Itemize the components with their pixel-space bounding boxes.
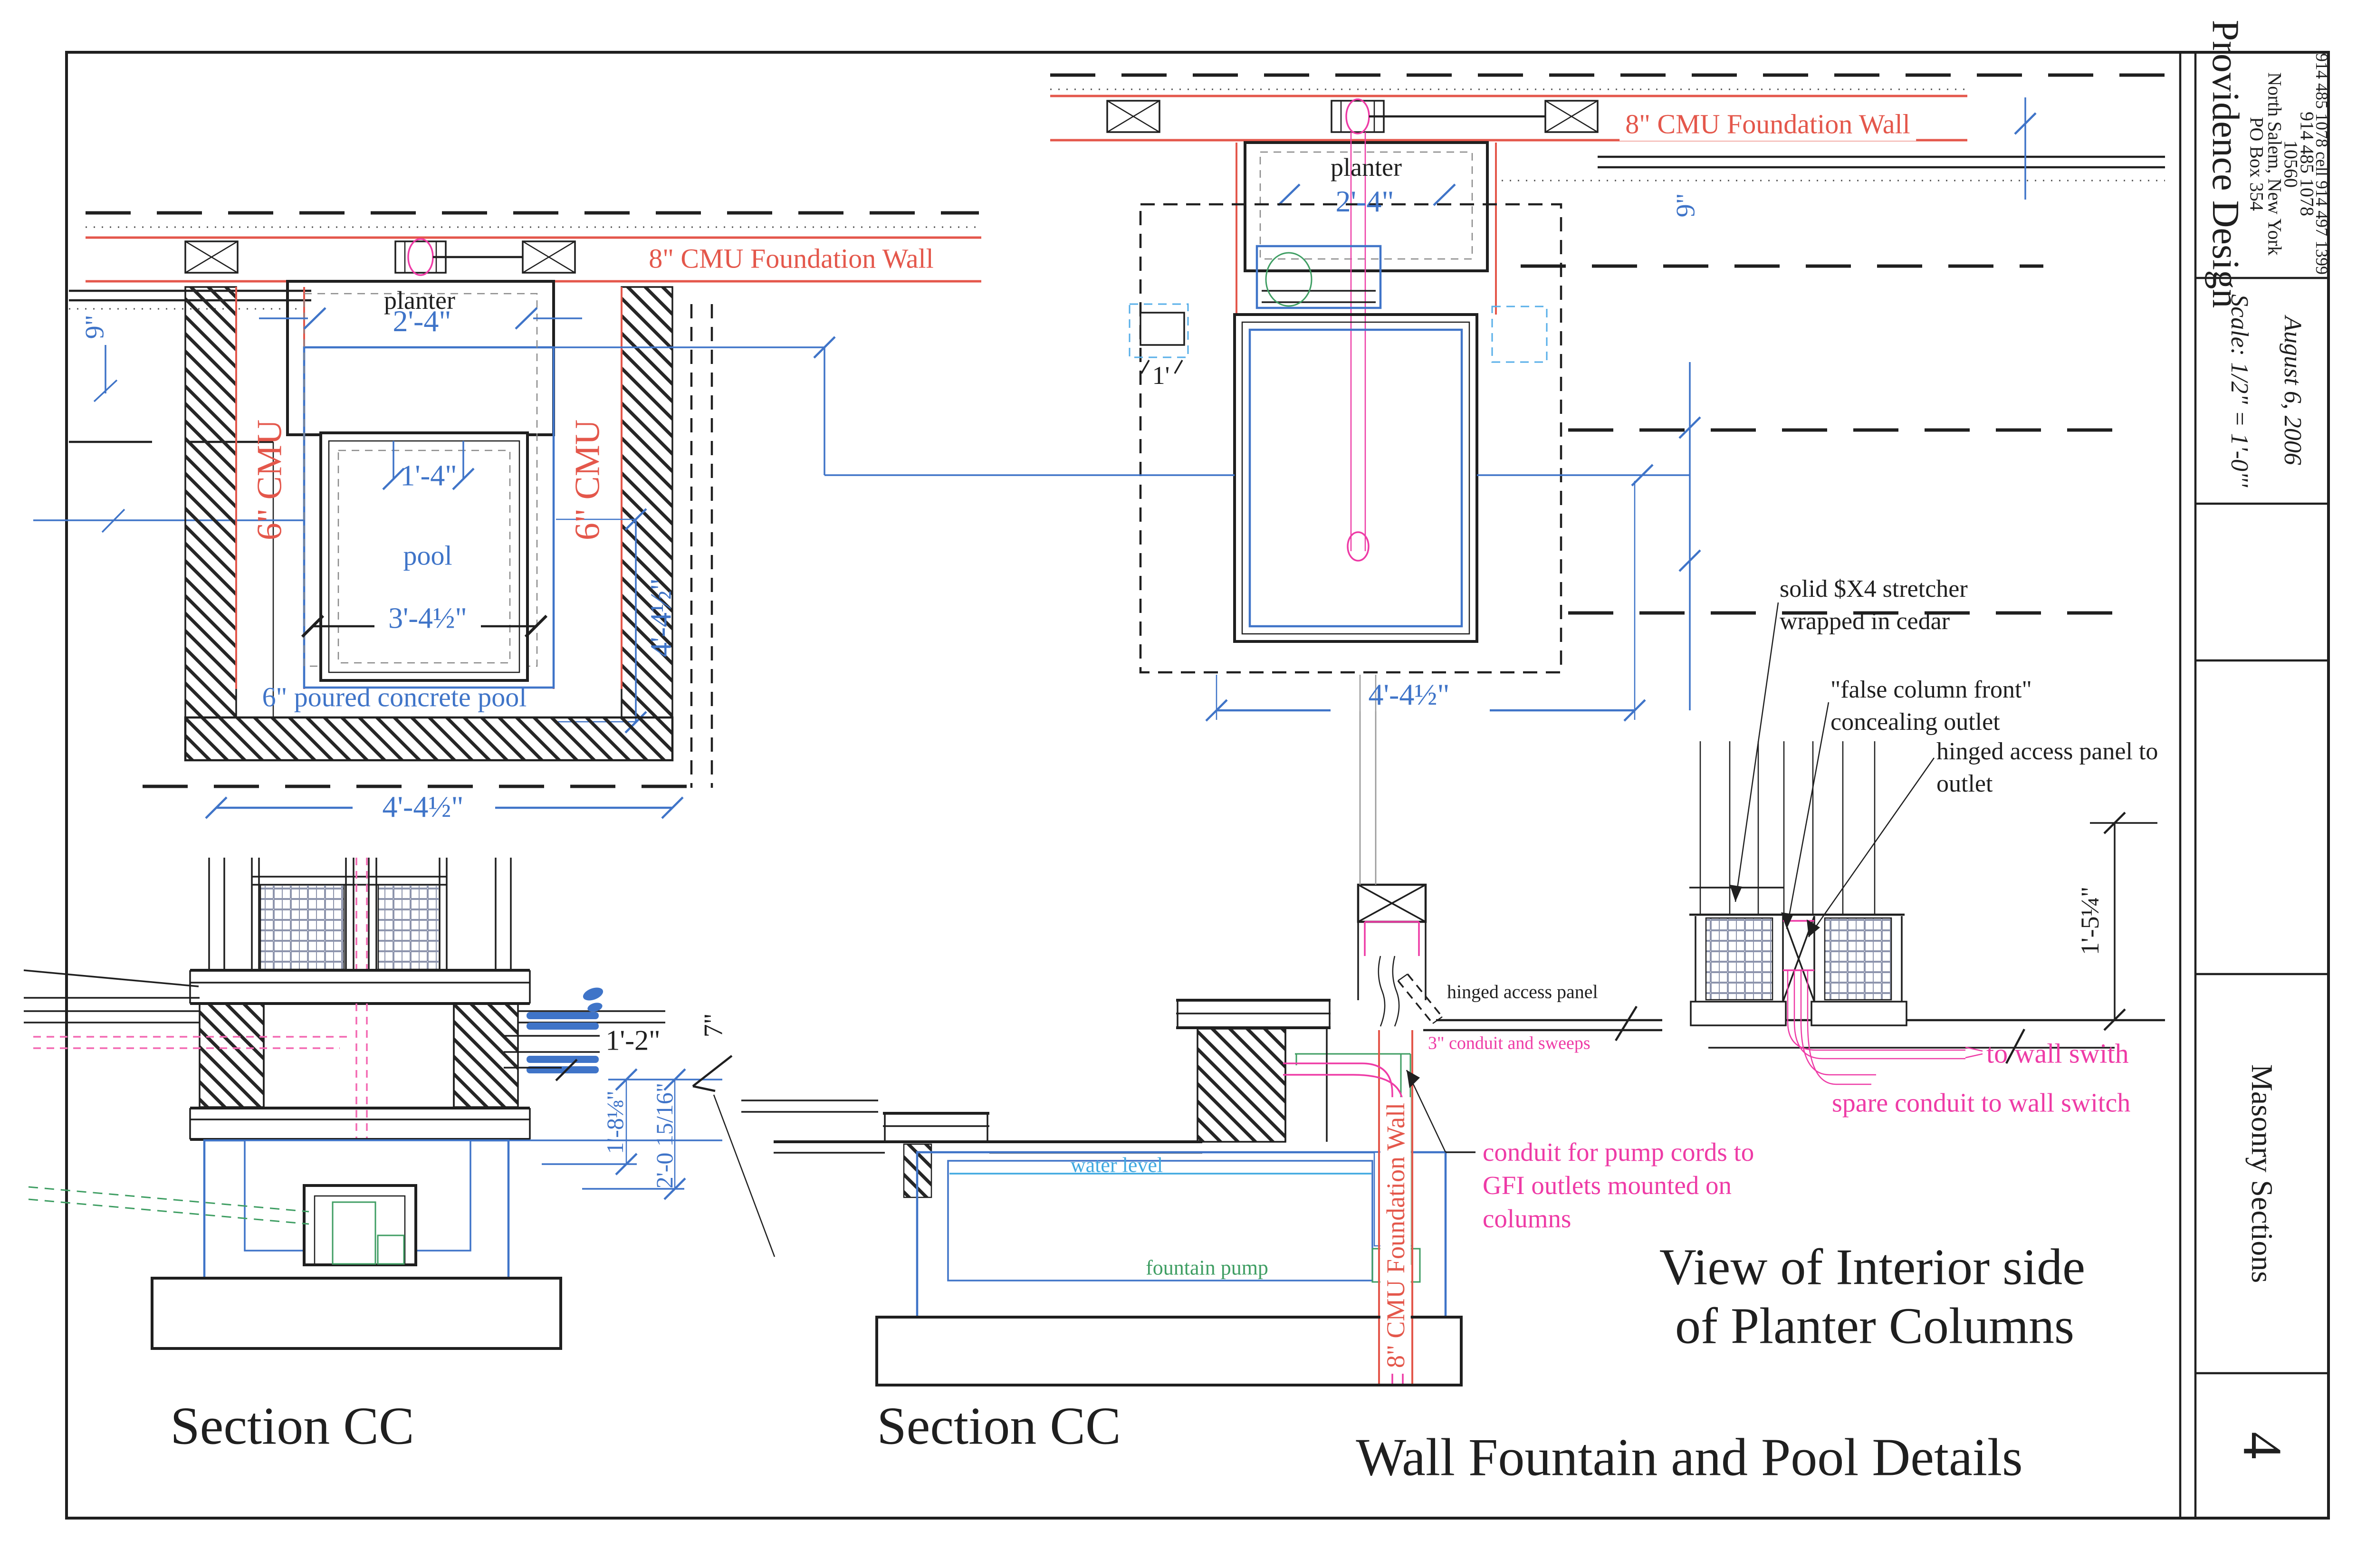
foundation-wall-label-left: 8" CMU Foundation Wall (649, 244, 934, 275)
interior-view-heading-line1: View of Interior side (1659, 1239, 2085, 1297)
dim-1-2: 1'-2" (605, 1024, 660, 1056)
dim-1-4: 1'-4" (400, 459, 457, 492)
sheet-title: Masonry Sections (2245, 1064, 2279, 1283)
dim-4-4-half-vertical: 4'-4½" (645, 578, 678, 657)
detail-right-linework (1689, 602, 2165, 1084)
false-column-label-line2: concealing outlet (1830, 708, 2000, 736)
dim-4-4-half-right: 4'-4½" (1369, 678, 1450, 712)
company-name: Providence Design (2204, 20, 2246, 308)
sheet-number: 4 (2232, 1432, 2293, 1459)
company-phone2: 914 485 1078 cell 914 497 1399 (2312, 53, 2331, 275)
pump-cords-note-line1: conduit for pump cords to (1483, 1138, 1754, 1167)
stretcher-label-line1: solid $X4 stretcher (1780, 575, 1968, 603)
pump-cords-note-line3: columns (1483, 1204, 1571, 1233)
plan-left-linework (33, 213, 981, 818)
foundation-wall-label-right: 8" CMU Foundation Wall (1619, 108, 1916, 141)
section-cc-title-mid: Section CC (877, 1396, 1121, 1456)
cmu-label-right: 6" CMU (568, 420, 608, 540)
cmu-label-left: 6" CMU (250, 420, 290, 540)
drawing-sheet: Providence Design PO Box 354 North Salem… (0, 0, 2376, 1568)
dim-9in-right: 9" (1671, 193, 1701, 218)
dim-7in: 7" (699, 1013, 729, 1038)
false-column-label-line1: "false column front" (1830, 676, 2032, 704)
dim-1ft: 1' (1152, 361, 1170, 390)
dim-3-4-half: 3'-4½" (388, 602, 467, 635)
hinged-panel-label-mid: hinged access panel (1447, 982, 1598, 1003)
pump-cords-note-line2: GFI outlets mounted on (1483, 1171, 1732, 1200)
dim-1-8-eighth: 1'-8⅛" (602, 1090, 628, 1154)
spare-conduit-label: spare conduit to wall switch (1832, 1089, 2130, 1119)
water-level-label: water level (1071, 1153, 1163, 1176)
dim-4-4-half-bottom: 4'-4½" (383, 790, 464, 824)
to-wall-switch-label: to wall swith (1986, 1039, 2129, 1070)
drawing-scale: Scale: 1/2" = 1'-0"' (2225, 294, 2253, 487)
poured-concrete-label: 6" poured concrete pool (262, 682, 527, 713)
conduit-sweeps-label: 3" conduit and sweeps (1428, 1033, 1590, 1054)
hinged-panel-outlet-label-line1: hinged access panel to (1936, 738, 2158, 765)
dim-2-0-fifteen-sixteenths: 2'-0 15/16" (651, 1083, 678, 1188)
stretcher-label-line2: wrapped in cedar (1780, 608, 1950, 635)
dim-2-4-left: 2'-4" (393, 304, 451, 338)
section-cc-title-left: Section CC (170, 1396, 414, 1456)
pool-label: pool (403, 541, 452, 572)
foundation-wall-label-mid: 8" CMU Foundation Wall (1380, 1097, 1411, 1374)
dim-2-4-right: 2'-4" (1336, 184, 1394, 219)
section-left-linework (24, 858, 878, 1348)
main-drawing-title: Wall Fountain and Pool Details (1356, 1428, 2022, 1487)
fountain-pump-label: fountain pump (1146, 1256, 1268, 1279)
hinged-panel-outlet-label-line2: outlet (1936, 770, 1993, 798)
dim-1-5-quarter: 1'-5¼" (2076, 887, 2104, 955)
drawing-date: August 6, 2006 (2279, 316, 2306, 465)
interior-view-heading-line2: of Planter Columns (1675, 1298, 2074, 1356)
dim-9in-left: 9" (80, 315, 110, 339)
planter-label-right: planter (1331, 153, 1402, 182)
